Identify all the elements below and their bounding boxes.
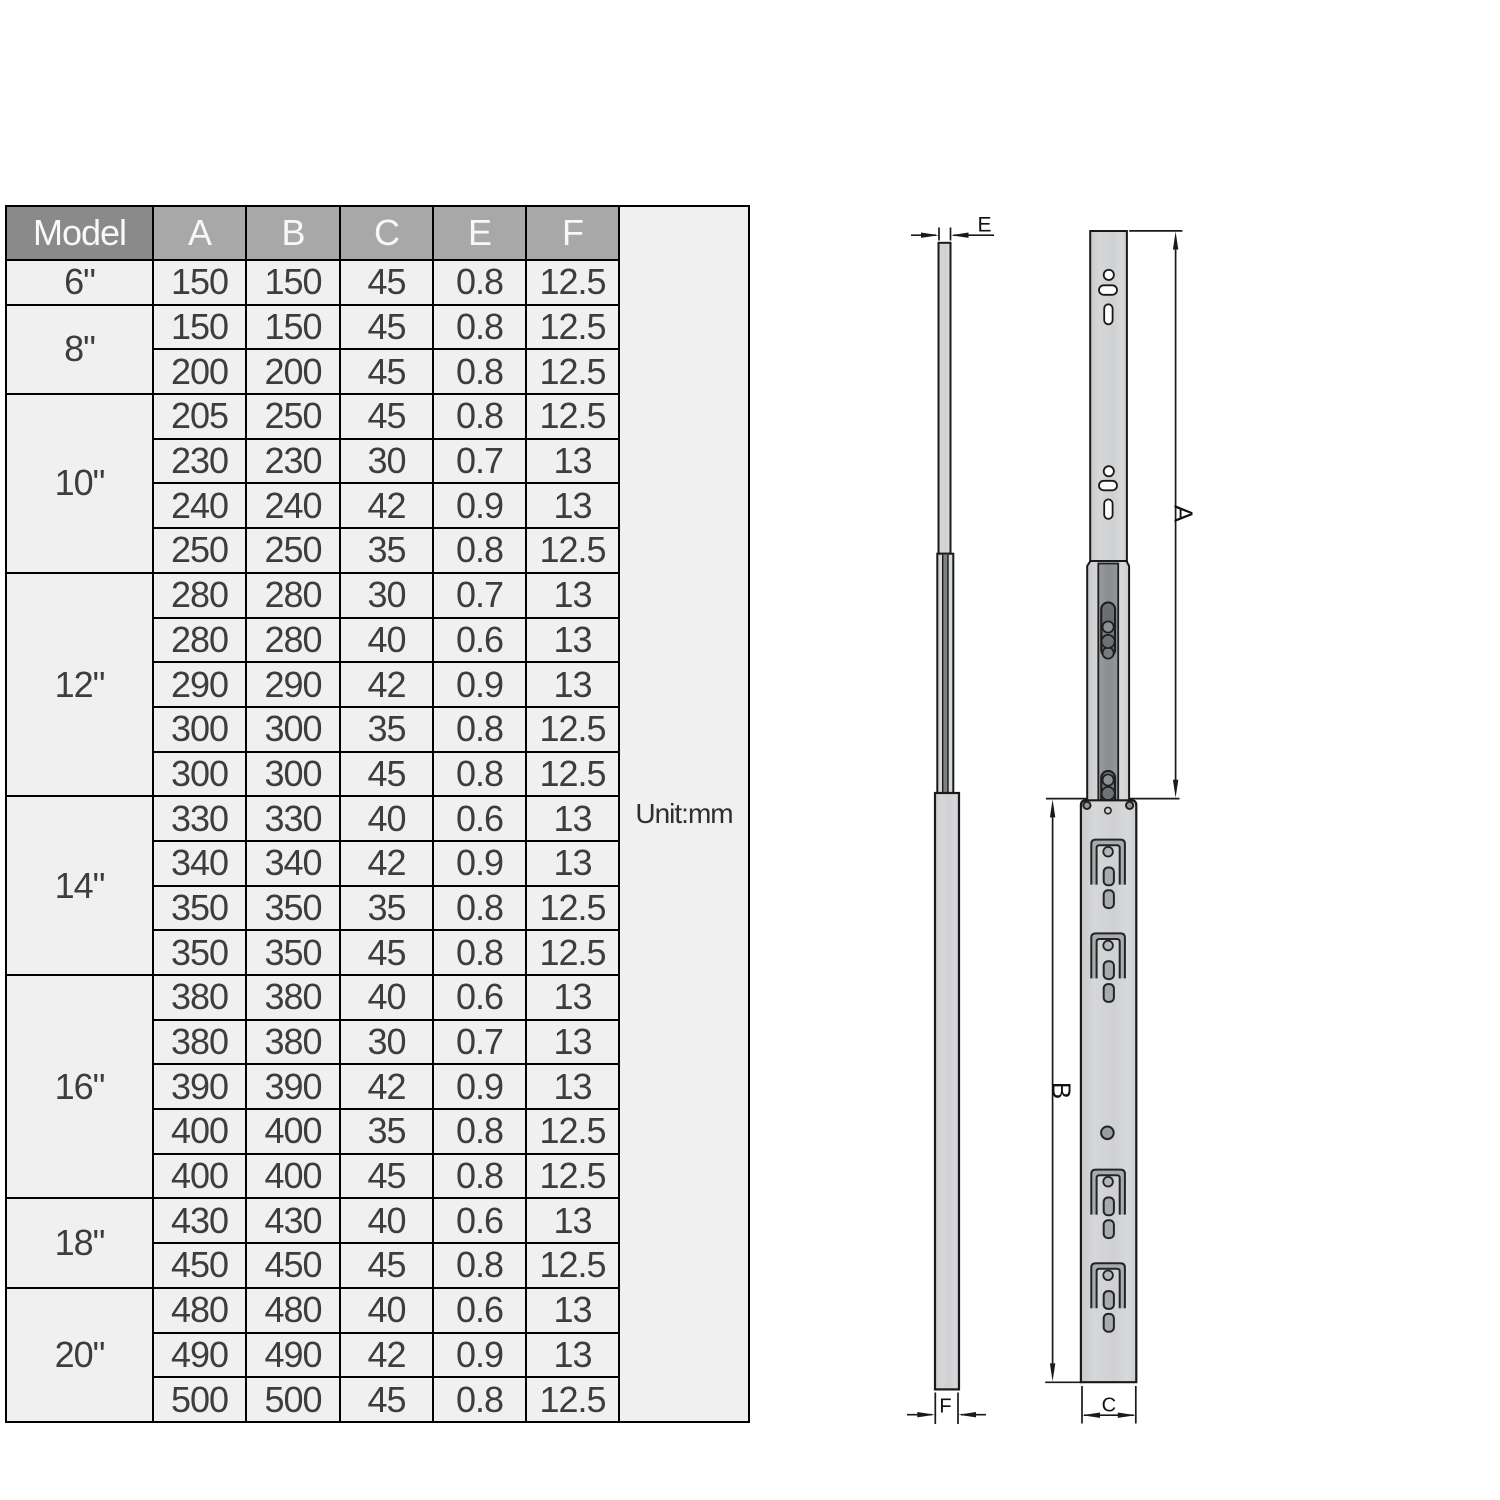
svg-text:B: B: [1046, 1082, 1076, 1099]
svg-text:E: E: [977, 214, 991, 237]
svg-text:C: C: [1102, 1395, 1116, 1417]
svg-text:F: F: [939, 1396, 951, 1418]
svg-text:A: A: [1169, 505, 1199, 523]
